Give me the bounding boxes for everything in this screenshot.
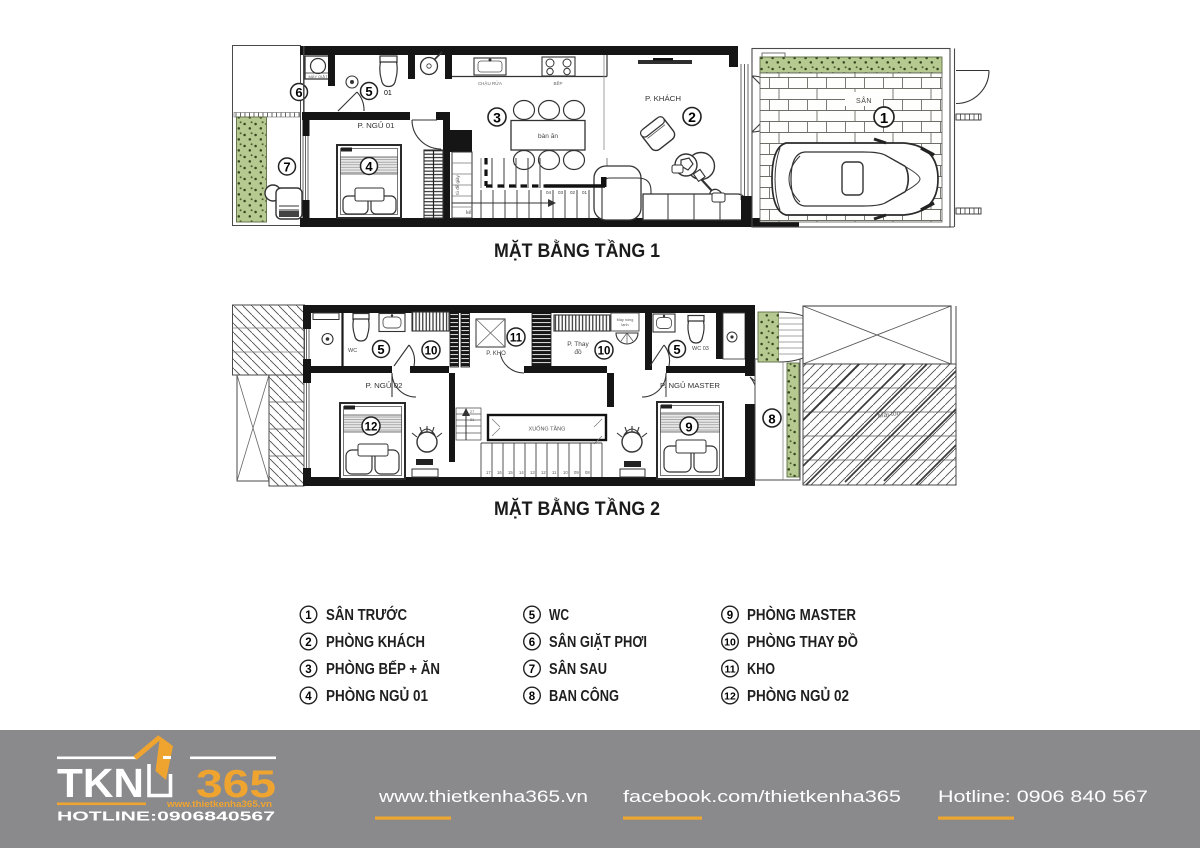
svg-text:4: 4 [365,159,373,174]
svg-text:16: 16 [497,470,502,475]
svg-text:PHÒNG KHÁCH: PHÒNG KHÁCH [326,632,425,651]
svg-text:10: 10 [425,346,438,358]
svg-text:P. KHO: P. KHO [486,351,506,357]
svg-text:7: 7 [283,160,290,175]
svg-text:P. KHÁCH: P. KHÁCH [645,94,681,103]
svg-text:tủ để giày: tủ để giày [454,174,460,194]
svg-text:11: 11 [724,664,735,676]
svg-text:đồ: đồ [574,347,582,356]
svg-text:CHẬU RỬA: CHẬU RỬA [478,80,502,86]
svg-text:9: 9 [727,610,733,622]
svg-text:KHO: KHO [747,661,775,678]
svg-text:www.thietkenha365.vn: www.thietkenha365.vn [166,799,272,809]
svg-text:6: 6 [295,85,302,100]
svg-text:SÂN: SÂN [856,96,872,105]
svg-text:MẶT BẰNG TẦNG 2: MẶT BẰNG TẦNG 2 [494,496,660,520]
svg-text:8: 8 [529,691,536,703]
svg-text:PHÒNG NGỦ 01: PHÒNG NGỦ 01 [326,686,428,705]
svg-text:P. NGỦ MASTER: P. NGỦ MASTER [660,381,721,390]
svg-text:WC 03: WC 03 [692,346,709,352]
svg-text:1: 1 [305,610,312,622]
svg-text:facebook.com/thietkenha365: facebook.com/thietkenha365 [623,788,901,806]
svg-text:11: 11 [552,470,557,475]
svg-text:11: 11 [510,333,523,345]
svg-text:3: 3 [493,110,501,126]
svg-text:SÂN TRƯỚC: SÂN TRƯỚC [326,605,407,624]
svg-text:lạnh: lạnh [621,323,628,327]
svg-text:12: 12 [541,470,546,475]
svg-text:www.thietkenha365.vn: www.thietkenha365.vn [378,788,588,806]
svg-text:HOTLINE:0906840567: HOTLINE:0906840567 [57,810,275,824]
svg-text:5: 5 [365,84,372,99]
svg-text:10: 10 [724,637,736,649]
svg-text:P. NGỦ 02: P. NGỦ 02 [366,381,403,390]
svg-text:P. Thay: P. Thay [567,341,589,348]
svg-text:01: 01 [384,90,392,97]
svg-text:4: 4 [305,691,312,703]
svg-text:09: 09 [574,470,579,475]
svg-text:10: 10 [563,470,568,475]
svg-text:P. NGỦ 01: P. NGỦ 01 [358,121,395,130]
svg-text:6: 6 [529,637,535,649]
svg-text:PHÒNG MASTER: PHÒNG MASTER [747,605,856,624]
svg-text:14: 14 [519,470,524,475]
svg-text:2: 2 [305,637,311,649]
svg-text:MÁY GIẶT: MÁY GIẶT [308,74,328,79]
svg-text:SÂN GIẶT PHƠI: SÂN GIẶT PHƠI [549,632,647,651]
svg-text:XUỐNG TẦNG: XUỐNG TẦNG [529,426,566,433]
svg-text:WC: WC [549,607,569,624]
svg-text:5: 5 [529,610,536,622]
svg-text:WC: WC [348,348,357,354]
svg-text:bàn ăn: bàn ăn [538,133,558,140]
svg-text:BAN CÔNG: BAN CÔNG [549,686,619,705]
svg-text:02: 02 [570,190,576,195]
svg-text:Máy nóng: Máy nóng [617,318,634,322]
svg-text:1: 1 [880,110,888,127]
svg-text:10: 10 [598,346,611,358]
svg-text:17: 17 [486,470,491,475]
svg-text:5: 5 [377,342,384,357]
svg-text:PHÒNG NGỦ 02: PHÒNG NGỦ 02 [747,686,849,705]
svg-text:kế: kế [466,210,472,216]
svg-text:27: 27 [470,410,474,414]
svg-text:12: 12 [724,691,736,703]
svg-text:21: 21 [470,418,474,422]
svg-text:Hotline: 0906 840 567: Hotline: 0906 840 567 [938,788,1148,806]
svg-text:04: 04 [546,190,552,195]
svg-text:2: 2 [688,109,696,125]
svg-text:08: 08 [585,470,590,475]
svg-text:9: 9 [685,420,692,435]
svg-text:MẶT BẰNG TẦNG 1: MẶT BẰNG TẦNG 1 [494,238,660,262]
svg-text:13: 13 [530,470,535,475]
svg-text:BẾP: BẾP [553,80,562,86]
svg-text:03: 03 [558,190,564,195]
svg-text:PHÒNG THAY ĐỒ: PHÒNG THAY ĐỒ [747,632,858,651]
svg-text:PHÒNG BẾP + ĂN: PHÒNG BẾP + ĂN [326,659,440,678]
svg-text:01: 01 [582,190,588,195]
svg-text:SÂN SAU: SÂN SAU [549,659,607,678]
svg-text:TKN: TKN [57,760,144,806]
svg-text:3: 3 [305,664,311,676]
svg-text:8: 8 [768,412,775,427]
svg-text:5: 5 [673,342,680,357]
svg-text:15: 15 [508,470,513,475]
svg-text:7: 7 [529,664,535,676]
svg-text:12: 12 [365,422,378,434]
